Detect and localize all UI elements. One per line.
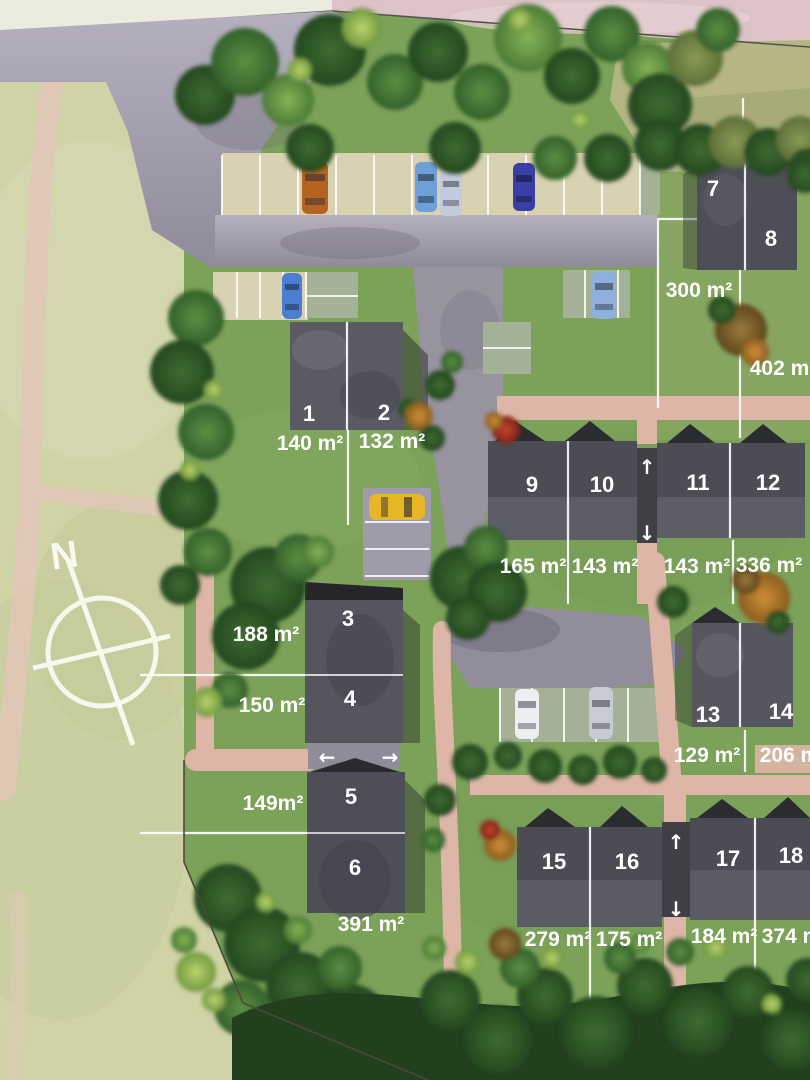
plot-6-number: 6 (349, 855, 361, 880)
plot-2-area: 132 m² (359, 430, 426, 453)
plot-15-area: 279 m² (525, 928, 592, 951)
plot-7-number: 7 (707, 176, 719, 201)
plot-2-number: 2 (378, 400, 390, 425)
plot-10-area: 143 m² (572, 555, 639, 578)
plot-5-area: 149m² (243, 792, 304, 815)
plot-16-area: 175 m² (596, 928, 663, 951)
plot-9-number: 9 (526, 472, 538, 497)
passage-arrow-down-9-12: ↓ (639, 521, 656, 545)
car-white (515, 689, 539, 739)
plot-15-number: 15 (542, 849, 566, 874)
plot-10-number: 10 (590, 472, 614, 497)
plot-14-area: 206 m² (760, 744, 810, 767)
passage-arrow-down-15-18: ↓ (668, 897, 685, 921)
plot-17-area: 184 m² (691, 925, 758, 948)
plot-8-area: 402 m² (750, 357, 810, 380)
car-yellow (369, 494, 425, 520)
plot-4-area: 150 m² (239, 694, 306, 717)
passage-arrow-up-15-18: ↑ (668, 830, 685, 854)
plot-11-number: 11 (686, 470, 709, 495)
plot-6-area: 391 m² (338, 913, 405, 936)
car-light-blue (415, 162, 437, 212)
plot-1-number: 1 (303, 401, 315, 426)
site-plan-page: N (0, 0, 810, 1080)
plot-14-number: 14 (769, 699, 794, 724)
building-plots-7-8 (683, 162, 797, 270)
driveway-arrow-right: → (382, 745, 399, 769)
plot-3-area: 188 m² (233, 623, 300, 646)
plot-18-area: 374 m² (762, 925, 810, 948)
plot-5-number: 5 (345, 784, 357, 809)
plot-17-number: 17 (716, 846, 740, 871)
driveway-arrow-left: ← (319, 745, 336, 769)
plot-13-number: 13 (696, 702, 720, 727)
car-dark-blue (513, 163, 535, 211)
site-plan-canvas: N (0, 0, 810, 1080)
building-plots-3-4 (305, 582, 420, 769)
plot-18-number: 18 (779, 843, 803, 868)
car-blue (282, 273, 302, 319)
plot-12-area: 336 m² (736, 554, 803, 577)
car-steel-blue (592, 271, 616, 319)
plot-4-number: 4 (344, 686, 357, 711)
car-grey (589, 687, 613, 739)
plot-3-number: 3 (342, 606, 354, 631)
compass-north-label: N (48, 533, 81, 578)
plot-16-number: 16 (615, 849, 639, 874)
car-silver (440, 170, 462, 216)
plot-7-area: 300 m² (666, 279, 733, 302)
plot-13-area: 129 m² (674, 744, 741, 767)
plot-1-area: 140 m² (277, 432, 344, 455)
plot-8-number: 8 (765, 226, 777, 251)
building-plots-5-6 (307, 758, 425, 920)
plot-12-number: 12 (756, 470, 780, 495)
passage-arrow-up-9-12: ↑ (639, 455, 656, 479)
plot-9-area: 165 m² (500, 555, 567, 578)
plot-11-area: 143 m² (664, 555, 731, 578)
